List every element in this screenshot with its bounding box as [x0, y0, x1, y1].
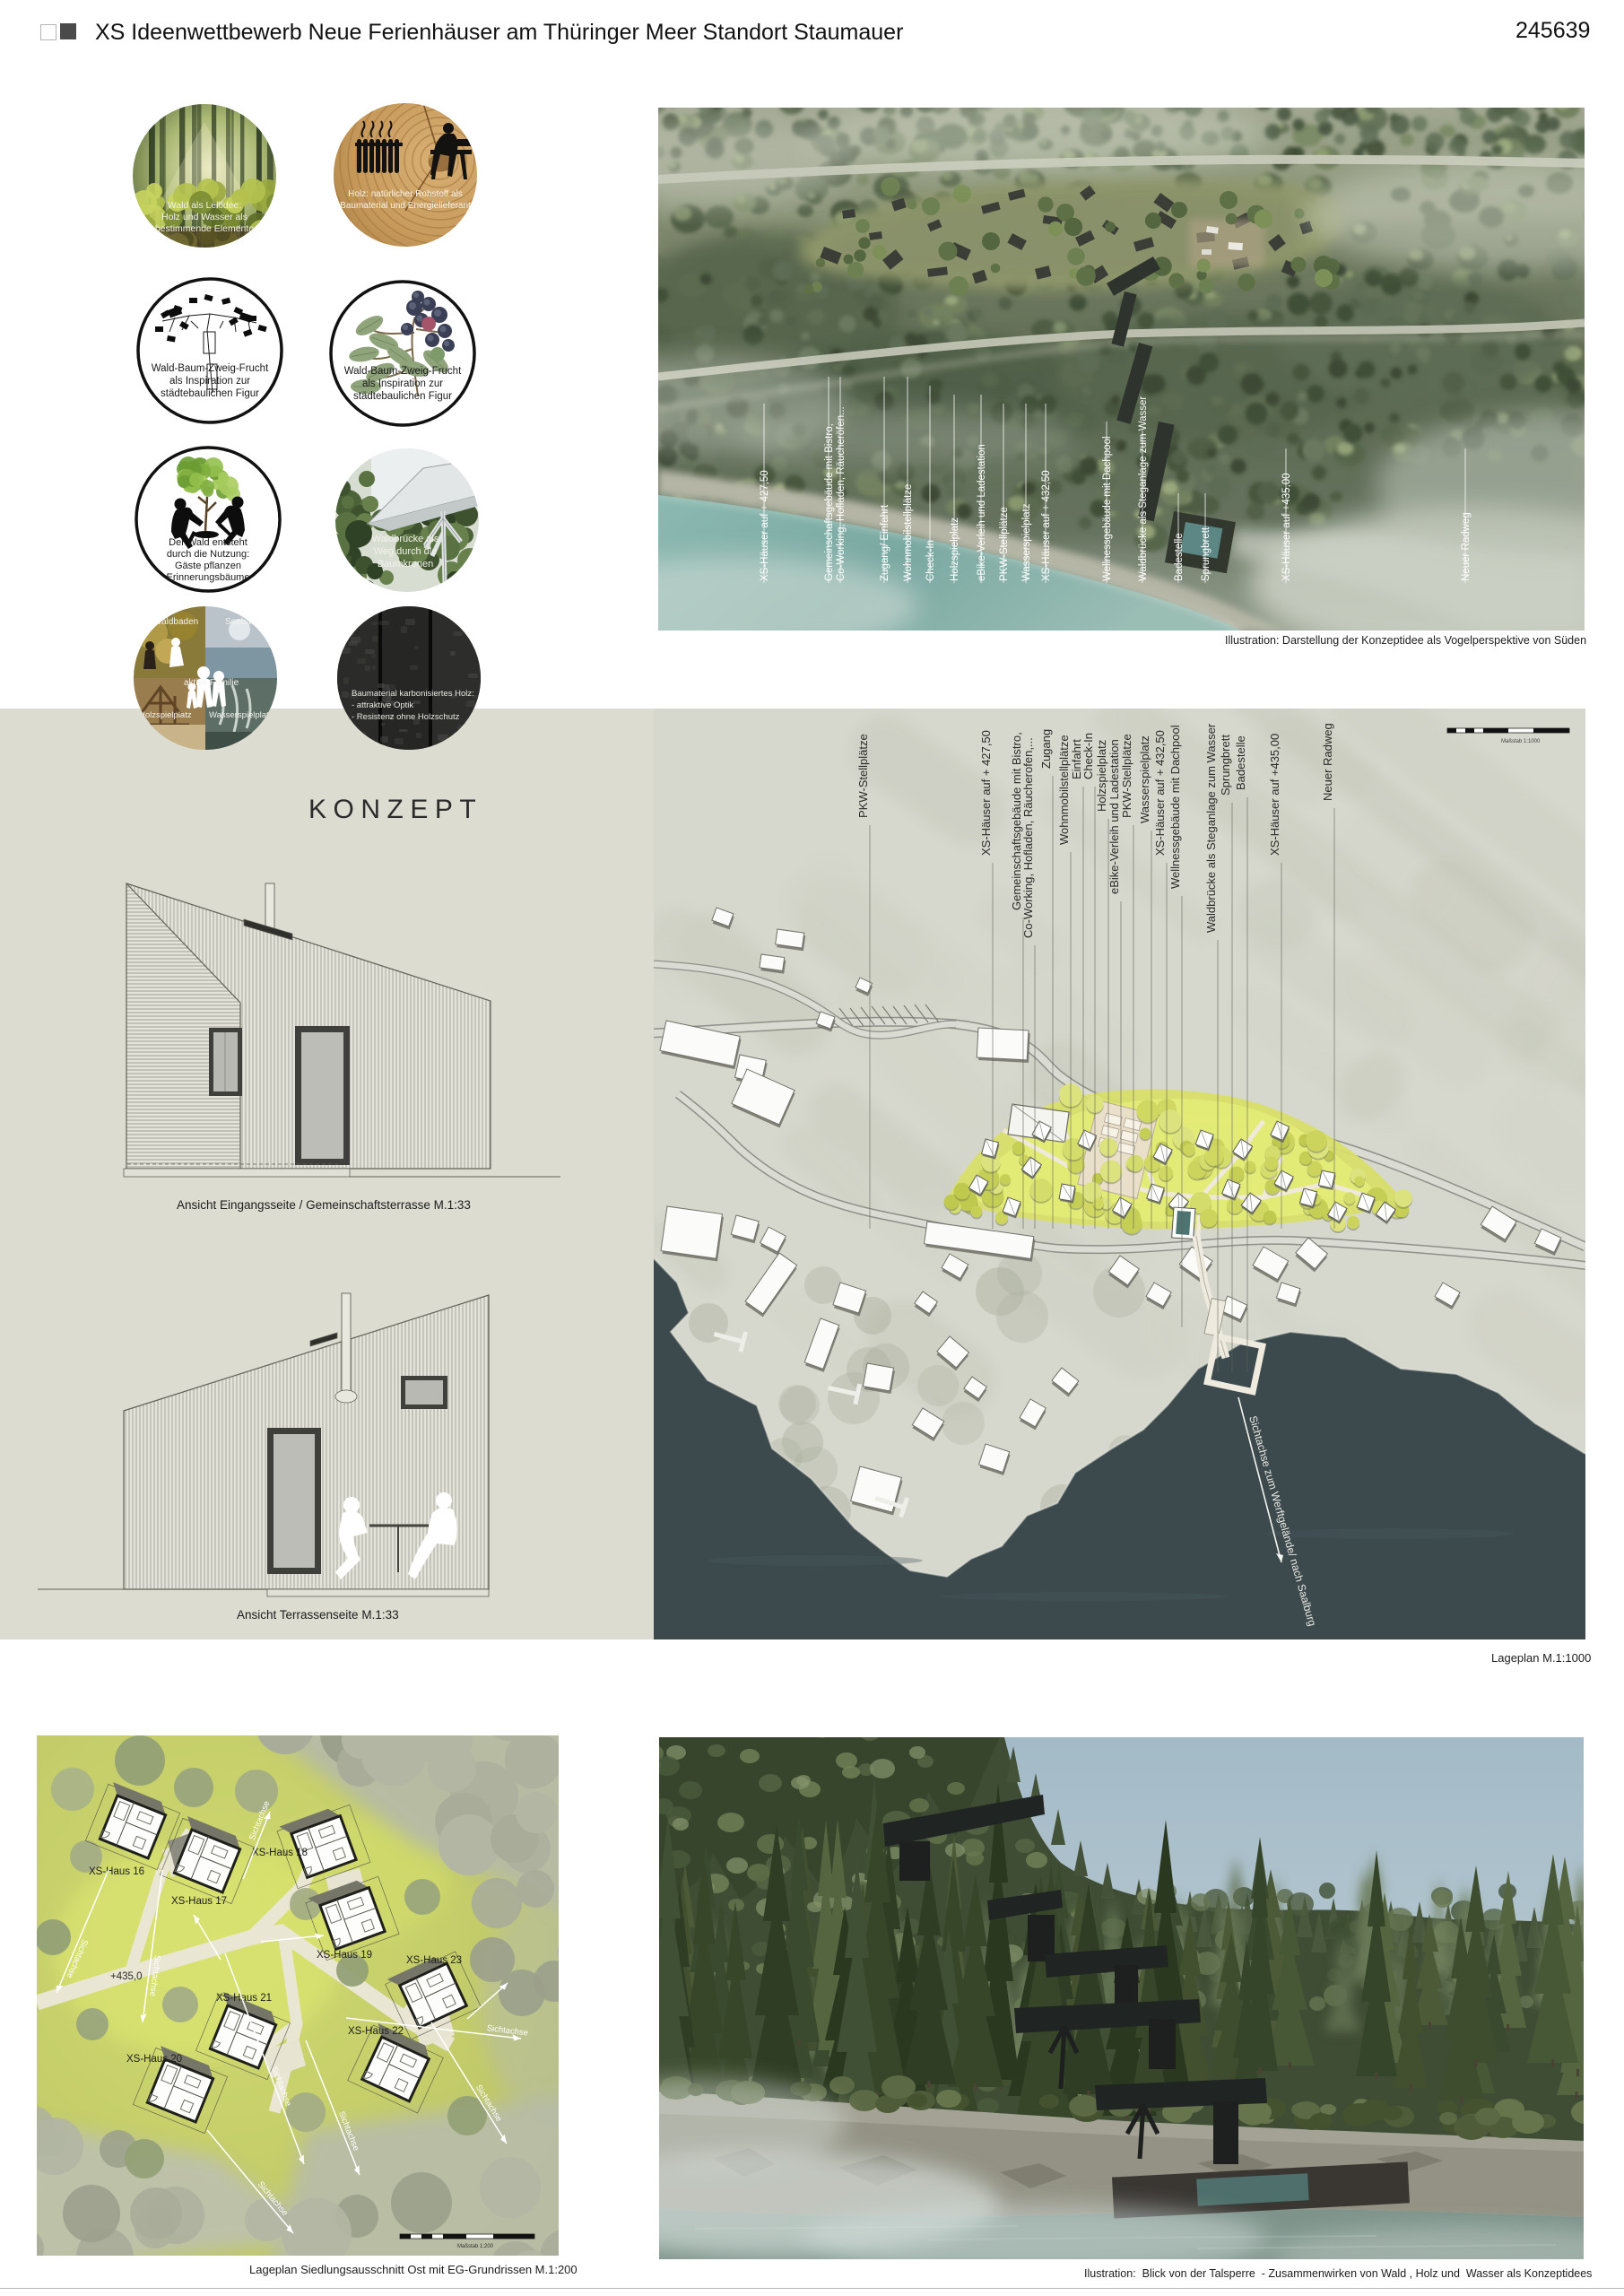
svg-text:Seebaden: Seebaden: [225, 617, 266, 627]
svg-text:Badestelle: Badestelle: [1174, 533, 1185, 581]
svg-text:als Inspiration zur: als Inspiration zur: [169, 376, 250, 387]
svg-text:Holzspielplatz: Holzspielplatz: [1095, 740, 1108, 812]
svg-text:bestimmende Elemente: bestimmende Elemente: [155, 223, 254, 234]
svg-text:XS-Häuser auf + 432,50: XS-Häuser auf + 432,50: [1041, 470, 1052, 581]
svg-text:+435,0: +435,0: [110, 1971, 143, 1982]
svg-text:Baumkronen: Baumkronen: [378, 559, 433, 570]
svg-text:städtebaulichen Figur: städtebaulichen Figur: [161, 388, 259, 399]
svg-text:Zugang/ Einfahrt: Zugang/ Einfahrt: [880, 504, 890, 581]
svg-text:XS-Haus 22: XS-Haus 22: [348, 2026, 404, 2037]
svg-text:durch die Nutzung:: durch die Nutzung:: [167, 549, 249, 560]
svg-text:Gäste pflanzen: Gäste pflanzen: [175, 561, 241, 571]
svg-text:Sprungbrett: Sprungbrett: [1219, 735, 1232, 796]
svg-text:Neuer Radweg: Neuer Radweg: [1461, 512, 1472, 581]
svg-text:XS-Häuser auf +435,00: XS-Häuser auf +435,00: [1268, 734, 1281, 856]
svg-text:PKW-Stellplätze: PKW-Stellplätze: [856, 734, 870, 818]
svg-text:Wald-Baum-Zweig-Frucht: Wald-Baum-Zweig-Frucht: [344, 366, 462, 377]
svg-text:Baumaterial und Energieliefera: Baumaterial und Energielieferant: [340, 201, 471, 211]
svg-text:XS-Häuser auf + 427,50: XS-Häuser auf + 427,50: [760, 470, 770, 581]
svg-text:XS-Haus 23: XS-Haus 23: [406, 1955, 462, 1966]
svg-text:Der Wald entsteht: Der Wald entsteht: [169, 537, 248, 548]
svg-text:Holzspielplatz: Holzspielplatz: [950, 517, 960, 581]
svg-text:Holz und Wasser als: Holz und Wasser als: [161, 212, 248, 222]
svg-text:XS-Haus 17: XS-Haus 17: [171, 1896, 227, 1907]
svg-text:Wald-Baum-Zweig-Frucht: Wald-Baum-Zweig-Frucht: [152, 363, 269, 374]
svg-text:Maßstab 1:200: Maßstab 1:200: [457, 2244, 494, 2249]
svg-text:Wohnmobilstellplätze: Wohnmobilstellplätze: [903, 484, 914, 581]
svg-text:Check-In: Check-In: [925, 540, 936, 581]
svg-text:XS-Häuser auf + 427,50: XS-Häuser auf + 427,50: [979, 730, 993, 856]
svg-text:aktive Familie: aktive Familie: [184, 678, 239, 688]
svg-text:Gemeinschaftsgebäude mit Bistr: Gemeinschaftsgebäude mit Bistro,: [824, 423, 835, 581]
svg-text:XS-Haus 16: XS-Haus 16: [89, 1866, 144, 1877]
svg-text:Weg durch die: Weg durch die: [374, 546, 438, 557]
svg-text:Co-Working, Hofladen, Räucherö: Co-Working, Hofladen, Räucheröfen...: [836, 406, 847, 581]
svg-text:städtebaulichen Figur: städtebaulichen Figur: [353, 391, 452, 402]
svg-text:als Inspiration zur: als Inspiration zur: [362, 378, 443, 389]
svg-text:Waldbrücke als Steganlage zum: Waldbrücke als Steganlage zum Wasser: [1204, 723, 1218, 933]
svg-text:XS-Häuser auf +435,00: XS-Häuser auf +435,00: [1281, 473, 1292, 581]
svg-text:Erinnerungsbäume: Erinnerungsbäume: [167, 572, 250, 583]
svg-text:Wasserspielplatz: Wasserspielplatz: [1138, 735, 1151, 823]
svg-text:Wellnessgebäude mit Dachpool: Wellnessgebäude mit Dachpool: [1168, 725, 1182, 889]
svg-text:XS-Haus 20: XS-Haus 20: [126, 2054, 182, 2065]
svg-text:Zugang: Zugang: [1039, 729, 1053, 769]
svg-text:Waldbrücke als: Waldbrücke als: [372, 534, 439, 544]
svg-text:eBike-Verleih und Ladestation: eBike-Verleih und Ladestation: [1107, 739, 1121, 894]
svg-text:PKW-Stellplätze: PKW-Stellplätze: [1120, 734, 1133, 818]
svg-text:Badestelle: Badestelle: [1234, 735, 1247, 790]
svg-text:Baumaterial karbonisiertes Hol: Baumaterial karbonisiertes Holz:: [352, 689, 474, 699]
svg-text:PKW-Stellplätze: PKW-Stellplätze: [999, 507, 1010, 581]
svg-text:XS-Häuser auf + 432,50: XS-Häuser auf + 432,50: [1153, 730, 1167, 856]
svg-text:Holzspielplatz: Holzspielplatz: [139, 710, 192, 720]
svg-text:Wohnmobilstellplätze: Wohnmobilstellplätze: [1057, 735, 1071, 845]
svg-text:Maßstab 1:1000: Maßstab 1:1000: [1501, 739, 1541, 744]
svg-text:eBike-Verleih und Ladestation: eBike-Verleih und Ladestation: [977, 444, 987, 581]
svg-text:Holz: natürlicher Rohstoff als: Holz: natürlicher Rohstoff als: [348, 189, 463, 199]
svg-text:Co-Working, Hofladen, Räuchero: Co-Working, Hofladen, Räucherofen,...: [1021, 737, 1035, 938]
svg-text:- attraktive Optik: - attraktive Optik: [352, 700, 413, 710]
svg-text:Wasserspielplatz: Wasserspielplatz: [209, 710, 274, 720]
svg-text:XS-Haus 18: XS-Haus 18: [252, 1848, 308, 1858]
svg-text:XS-Haus 19: XS-Haus 19: [317, 1950, 372, 1961]
svg-text:Wellnessgebäude mit Dachpool: Wellnessgebäude mit Dachpool: [1102, 436, 1113, 581]
svg-text:Waldbaden: Waldbaden: [153, 617, 198, 627]
svg-text:- Resistenz ohne Holzschutz: - Resistenz ohne Holzschutz: [352, 712, 460, 722]
svg-text:Neuer Radweg: Neuer Radweg: [1321, 723, 1334, 801]
svg-text:Check-In: Check-In: [1081, 733, 1095, 779]
svg-text:Sprungbrett: Sprungbrett: [1201, 526, 1211, 581]
svg-text:Wasserspielplatz: Wasserspielplatz: [1021, 503, 1032, 581]
svg-text:Wald als Leitidee:: Wald als Leitidee:: [168, 200, 242, 211]
svg-text:Waldbrücke als Steganlage zum: Waldbrücke als Steganlage zum Wasser: [1138, 396, 1149, 581]
